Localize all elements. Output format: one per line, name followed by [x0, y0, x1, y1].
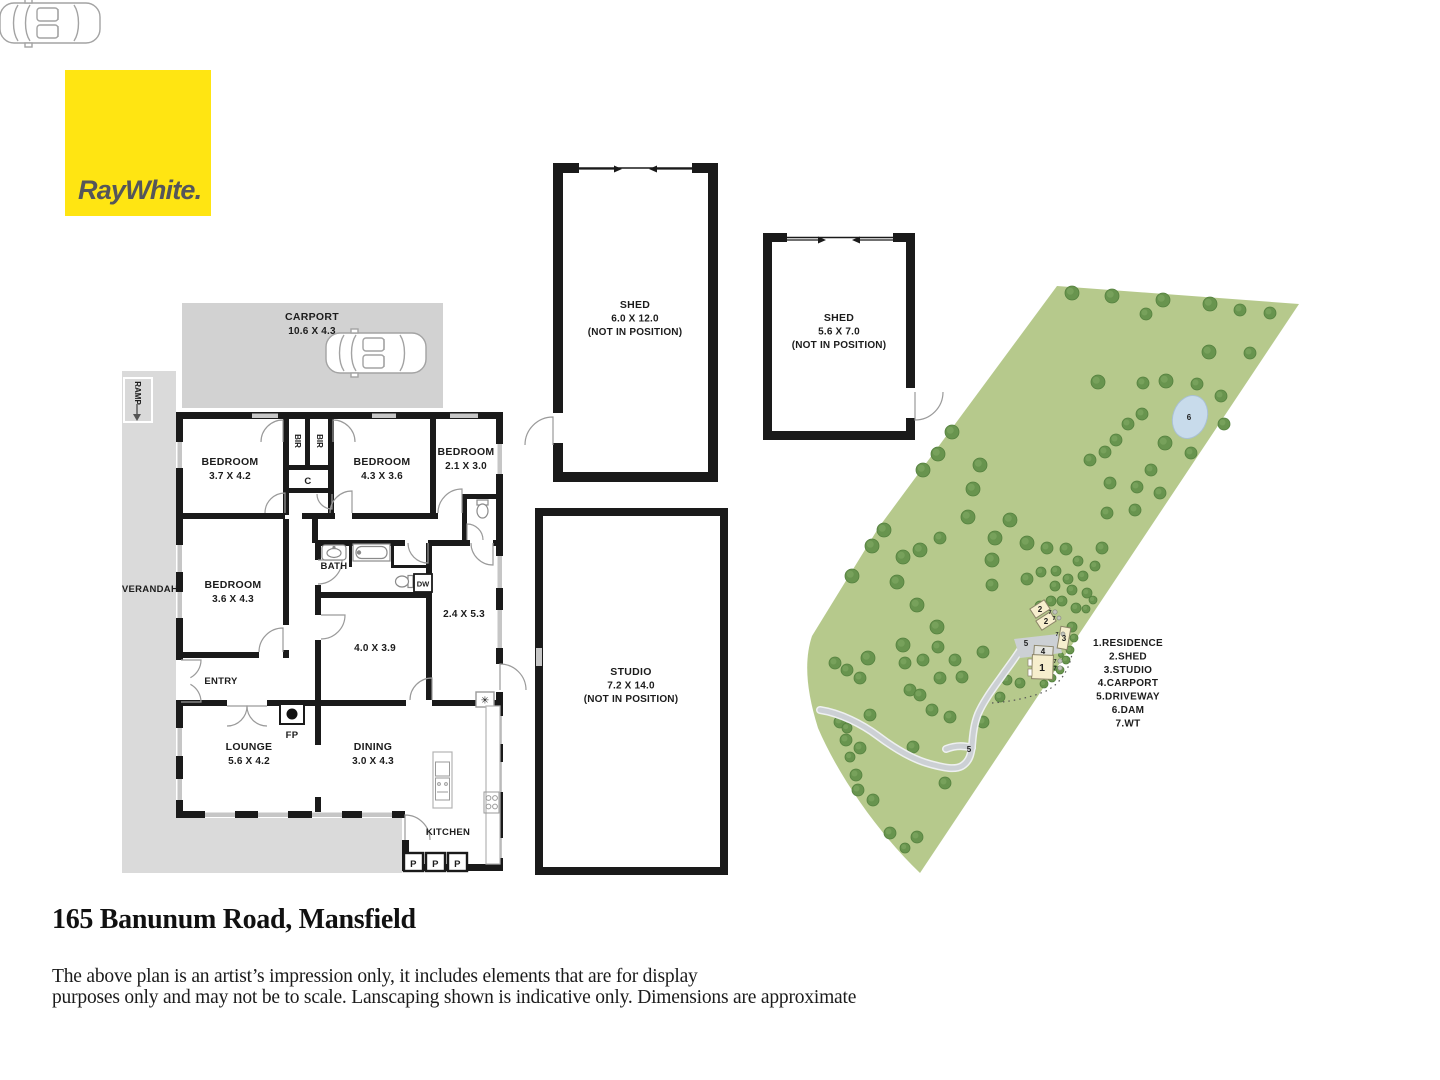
bedroom3-dims: 2.1 X 3.0 — [445, 461, 487, 472]
tree-highlight — [1139, 379, 1145, 385]
carport-dims: 10.6 X 4.3 — [288, 326, 336, 337]
tree-highlight — [1067, 288, 1074, 295]
tree-highlight — [1205, 299, 1212, 306]
bedroom2-label: BEDROOM — [354, 456, 411, 468]
tree-highlight — [1093, 377, 1100, 384]
shed2-note: (NOT IN POSITION) — [792, 340, 887, 351]
studio-label: STUDIO — [610, 666, 651, 678]
wall — [288, 811, 312, 818]
map-marker-wt: 7 — [1048, 610, 1051, 616]
tree-highlight — [1037, 568, 1042, 573]
toilet-icon — [477, 500, 488, 518]
tree-highlight — [912, 600, 919, 607]
page-title: 165 Banunum Road, Mansfield — [52, 904, 416, 935]
tree-highlight — [996, 693, 1001, 698]
ramp-label: RAMP — [133, 381, 142, 405]
window-mark — [258, 813, 288, 818]
tree-highlight — [1072, 604, 1077, 609]
window-mark — [205, 813, 235, 818]
wall — [176, 811, 205, 818]
tree-highlight — [951, 656, 957, 662]
wall — [235, 811, 258, 818]
wall — [496, 588, 503, 610]
wall — [315, 543, 321, 560]
tree-highlight — [1083, 589, 1088, 594]
window-mark — [312, 813, 342, 818]
wall — [283, 652, 289, 658]
bedroom1-dims: 3.7 X 4.2 — [209, 471, 251, 482]
wall — [720, 508, 728, 875]
slide-door-arrow-icon — [567, 166, 903, 244]
car-icon — [0, 0, 100, 47]
disclaimer-line1: The above plan is an artist’s impression… — [52, 966, 698, 987]
tree-highlight — [968, 484, 975, 491]
legend-item: 2.SHED — [1109, 651, 1147, 662]
door-swing — [265, 493, 285, 513]
wall — [176, 572, 183, 592]
tree-highlight — [936, 674, 942, 680]
window-mark — [498, 444, 503, 474]
bedroom2-dims: 4.3 X 3.6 — [361, 471, 403, 482]
wall — [708, 163, 718, 482]
wall — [321, 700, 406, 706]
tree-highlight — [1106, 479, 1112, 485]
tree-highlight — [901, 844, 906, 849]
wall — [535, 867, 728, 875]
wall — [283, 488, 334, 493]
door-swing — [500, 664, 526, 690]
door-swing — [261, 420, 283, 442]
studio-window — [536, 648, 542, 666]
tree-highlight — [856, 674, 862, 680]
wall — [176, 468, 183, 545]
tree-highlight — [1062, 545, 1068, 551]
tree-highlight — [1063, 657, 1067, 661]
window-mark — [252, 414, 278, 419]
kitchen-counter — [433, 706, 500, 864]
wall — [312, 519, 318, 543]
wall — [906, 233, 915, 388]
tree-highlight — [1071, 635, 1075, 639]
bir-label: BIR — [293, 434, 302, 448]
wall — [763, 233, 772, 440]
map-marker-wt: 7 — [1055, 632, 1058, 638]
tree-highlight — [918, 465, 925, 472]
legend-item: 4.CARPORT — [1098, 678, 1158, 689]
kitchen-label: KITCHEN — [426, 827, 470, 838]
tree-highlight — [988, 581, 994, 587]
map-marker-wt: 7 — [1052, 616, 1055, 622]
tree-highlight — [842, 736, 848, 742]
door-swing — [915, 392, 943, 420]
door-swing — [181, 684, 201, 702]
bath-label: BATH — [321, 561, 348, 572]
map-marker-shed: 2 — [1044, 617, 1049, 626]
tree-highlight — [1142, 310, 1148, 316]
tree-highlight — [846, 753, 851, 758]
door-swing — [525, 417, 553, 445]
verandah-label: VERANDAH — [122, 584, 178, 595]
tree-highlight — [1107, 291, 1114, 298]
map-marker-wt: 7 — [1053, 659, 1056, 665]
tree-highlight — [854, 786, 860, 792]
tree-highlight — [1090, 597, 1094, 601]
map-marker-studio: 3 — [1062, 634, 1067, 643]
fp-label: FP — [286, 730, 299, 741]
legend-item: 7.WT — [1115, 718, 1140, 729]
entry-label: ENTRY — [204, 676, 238, 687]
tree-highlight — [1091, 562, 1096, 567]
tree-highlight — [863, 653, 870, 660]
wall — [302, 513, 335, 519]
tree-highlight — [990, 533, 997, 540]
map-porch — [1028, 659, 1032, 666]
tree-highlight — [1161, 376, 1168, 383]
raywhite-logo: RayWhite. — [65, 70, 211, 216]
tree-highlight — [1041, 681, 1045, 685]
door-swing — [471, 543, 493, 565]
logo-wordmark: RayWhite. — [78, 175, 201, 205]
tree-highlight — [975, 460, 982, 467]
map-porch — [1028, 669, 1032, 676]
site-map: 2 2 3 4 1 5 5 6 7 7 7 7 7 1.RESIDENCE 2.… — [807, 286, 1299, 873]
tree-highlight — [1022, 538, 1029, 545]
door-swing — [227, 706, 247, 726]
wall — [176, 652, 259, 658]
tree-highlight — [843, 724, 848, 729]
window-mark — [450, 414, 478, 419]
wall — [176, 756, 183, 779]
legend-item: 3.STUDIO — [1104, 665, 1153, 676]
bathtub-icon — [353, 544, 390, 561]
family-room-dims: 4.0 X 3.9 — [354, 643, 396, 654]
tree-highlight — [909, 743, 915, 749]
land-parcel — [807, 286, 1299, 873]
tree-highlight — [898, 640, 905, 647]
wall — [462, 499, 467, 540]
tree-highlight — [1043, 544, 1049, 550]
tree-highlight — [1124, 420, 1130, 426]
tree-highlight — [1187, 449, 1193, 455]
door-swing — [333, 420, 355, 442]
studio-note: (NOT IN POSITION) — [584, 694, 679, 705]
heater-icon: ✳ — [476, 692, 494, 707]
footer: 165 Banunum Road, Mansfield The above pl… — [52, 904, 856, 1008]
tree-highlight — [1058, 597, 1063, 602]
shed2-label: SHED — [824, 312, 854, 324]
disclaimer-line2: purposes only and may not be to scale. L… — [52, 987, 856, 1008]
tree-highlight — [1193, 380, 1199, 386]
tree-highlight — [879, 525, 886, 532]
verandah-area — [122, 371, 402, 873]
bir-label: BIR — [315, 434, 324, 448]
wall — [283, 519, 289, 625]
wall — [176, 412, 183, 442]
map-marker-driveway: 5 — [967, 745, 972, 754]
tree-highlight — [946, 713, 952, 719]
wall — [430, 412, 436, 515]
tree-highlight — [933, 449, 940, 456]
wall — [392, 811, 405, 818]
studio-dims: 7.2 X 14.0 — [607, 681, 655, 692]
wall — [315, 797, 321, 812]
sink-icon — [322, 545, 346, 560]
tree-highlight — [979, 648, 985, 654]
window-mark — [498, 556, 503, 588]
wall — [496, 412, 503, 444]
pantry-label: P — [410, 859, 417, 870]
wall — [553, 472, 718, 482]
tree-highlight — [913, 833, 919, 839]
map-marker-wt: 7 — [1053, 666, 1056, 672]
tree-highlight — [1059, 653, 1062, 656]
tree-highlight — [1204, 347, 1211, 354]
door-swing — [321, 615, 345, 639]
tree-highlight — [898, 552, 905, 559]
tree-highlight — [963, 512, 970, 519]
wall — [183, 513, 285, 519]
map-legend: 1.RESIDENCE 2.SHED 3.STUDIO 4.CARPORT 5.… — [1093, 638, 1163, 729]
map-marker-shed: 2 — [1038, 605, 1043, 614]
tree-highlight — [987, 555, 994, 562]
tree-highlight — [831, 659, 837, 665]
map-marker-driveway: 5 — [1024, 639, 1029, 648]
lounge-dims: 5.6 X 4.2 — [228, 756, 270, 767]
shed1-note: (NOT IN POSITION) — [588, 327, 683, 338]
tree-highlight — [847, 571, 854, 578]
tree-highlight — [916, 691, 922, 697]
wall — [496, 648, 503, 664]
dishwasher-box: DW — [414, 574, 432, 592]
tree-highlight — [1005, 515, 1012, 522]
tree-highlight — [1101, 448, 1107, 454]
window-mark — [372, 414, 396, 419]
map-marker-residence: 1 — [1039, 662, 1045, 674]
walls — [176, 163, 915, 875]
wall — [349, 543, 352, 567]
tree-highlight — [1052, 567, 1057, 572]
tree-highlight — [1098, 544, 1104, 550]
wall — [315, 598, 321, 615]
tree-highlight — [1266, 309, 1272, 315]
wall — [553, 163, 563, 413]
car-icon — [326, 329, 426, 377]
shed1-dims: 6.0 X 12.0 — [611, 314, 659, 325]
tree-highlight — [1051, 582, 1056, 587]
legend-item: 1.RESIDENCE — [1093, 638, 1163, 649]
tree-highlight — [856, 744, 862, 750]
lounge-label: LOUNGE — [226, 741, 273, 753]
fireplace-icon — [280, 704, 304, 724]
window-mark — [178, 545, 183, 572]
window-mark — [178, 728, 183, 756]
pantry-label: P — [432, 859, 439, 870]
tree-highlight — [1068, 586, 1073, 591]
dining-label: DINING — [354, 741, 393, 753]
bedroom3-label: BEDROOM — [438, 446, 495, 458]
tree-highlight — [1083, 606, 1087, 610]
tree-highlight — [958, 673, 964, 679]
door-swing — [438, 489, 462, 513]
window-mark — [178, 592, 183, 618]
wall — [315, 706, 321, 745]
door-swing — [259, 628, 283, 652]
tree-highlight — [1138, 410, 1144, 416]
tree-highlight — [1220, 420, 1226, 426]
wall — [462, 494, 503, 499]
tree-highlight — [1047, 597, 1052, 602]
tree-highlight — [886, 829, 892, 835]
wall — [391, 543, 394, 568]
wall — [493, 540, 503, 546]
bedroom1-label: BEDROOM — [202, 456, 259, 468]
tree-highlight — [1079, 572, 1084, 577]
wall — [535, 508, 728, 516]
tree-highlight — [947, 427, 954, 434]
door-swing — [467, 524, 483, 540]
plan-image: RayWhite. RAMP CARPORT 10.6 X 4.3 VE — [0, 0, 1440, 1080]
wall — [391, 565, 432, 568]
wall — [428, 540, 470, 546]
dw-label: DW — [417, 580, 430, 589]
utility-room-dims: 2.4 X 5.3 — [443, 609, 485, 620]
tree-highlight — [1131, 506, 1137, 512]
tree-highlight — [1103, 509, 1109, 515]
tree-highlight — [843, 666, 849, 672]
bedroom4-label: BEDROOM — [205, 579, 262, 591]
tree-highlight — [1156, 489, 1162, 495]
tree-highlight — [936, 534, 942, 540]
tree-highlight — [1236, 306, 1242, 312]
wall — [352, 513, 430, 519]
tree-highlight — [1074, 557, 1079, 562]
shed1-label: SHED — [620, 299, 650, 311]
door-swing — [408, 543, 428, 563]
tree-highlight — [915, 545, 922, 552]
carport-label: CARPORT — [285, 311, 339, 323]
legend-item: 6.DAM — [1112, 705, 1145, 716]
map-marker-carport: 4 — [1041, 647, 1046, 656]
wall — [283, 412, 289, 515]
window-mark — [362, 813, 392, 818]
tree-highlight — [1086, 456, 1092, 462]
window-mark — [498, 610, 503, 648]
shed2-dims: 5.6 X 7.0 — [818, 327, 860, 338]
wall — [426, 598, 432, 700]
tree-highlight — [1217, 392, 1223, 398]
legend-item: 5.DRIVEWAY — [1096, 692, 1160, 703]
dining-dims: 3.0 X 4.3 — [352, 756, 394, 767]
tree-highlight — [901, 659, 907, 665]
toilet-icon — [396, 576, 414, 588]
tree-highlight — [866, 711, 872, 717]
svg-text:✳: ✳ — [481, 696, 489, 707]
tree-highlight — [1246, 349, 1252, 355]
door-swing — [181, 660, 201, 678]
tree-highlight — [1023, 575, 1029, 581]
bedroom4-dims: 3.6 X 4.3 — [212, 594, 254, 605]
tree-highlight — [941, 779, 947, 785]
cupboard-label: C — [304, 476, 311, 487]
wall — [342, 811, 362, 818]
tree-highlight — [1112, 436, 1118, 442]
tree-highlight — [934, 643, 940, 649]
tree-highlight — [1133, 483, 1139, 489]
wall — [315, 640, 321, 700]
tree-highlight — [928, 706, 934, 712]
tree-highlight — [852, 771, 858, 777]
tree-highlight — [1016, 679, 1021, 684]
tree-highlight — [919, 656, 925, 662]
pantry-cupboards: P P P — [404, 853, 467, 871]
tree-highlight — [869, 796, 875, 802]
map-marker-dam: 6 — [1187, 413, 1192, 422]
wall — [283, 465, 334, 470]
window-mark — [178, 442, 183, 468]
wall — [763, 431, 915, 440]
wall — [305, 412, 310, 470]
tree-highlight — [906, 686, 912, 692]
tree-highlight — [932, 622, 939, 629]
tree-highlight — [1158, 295, 1165, 302]
tree-highlight — [867, 541, 874, 548]
window-mark — [178, 779, 183, 800]
tree-highlight — [1147, 466, 1153, 472]
wall — [535, 508, 543, 875]
tree-highlight — [1064, 575, 1069, 580]
wall — [315, 592, 432, 598]
plan-page: RayWhite. RAMP CARPORT 10.6 X 4.3 VE — [0, 0, 1440, 1080]
tree-highlight — [1160, 438, 1167, 445]
tree-highlight — [892, 577, 899, 584]
door-swing — [247, 706, 267, 726]
pantry-label: P — [454, 859, 461, 870]
